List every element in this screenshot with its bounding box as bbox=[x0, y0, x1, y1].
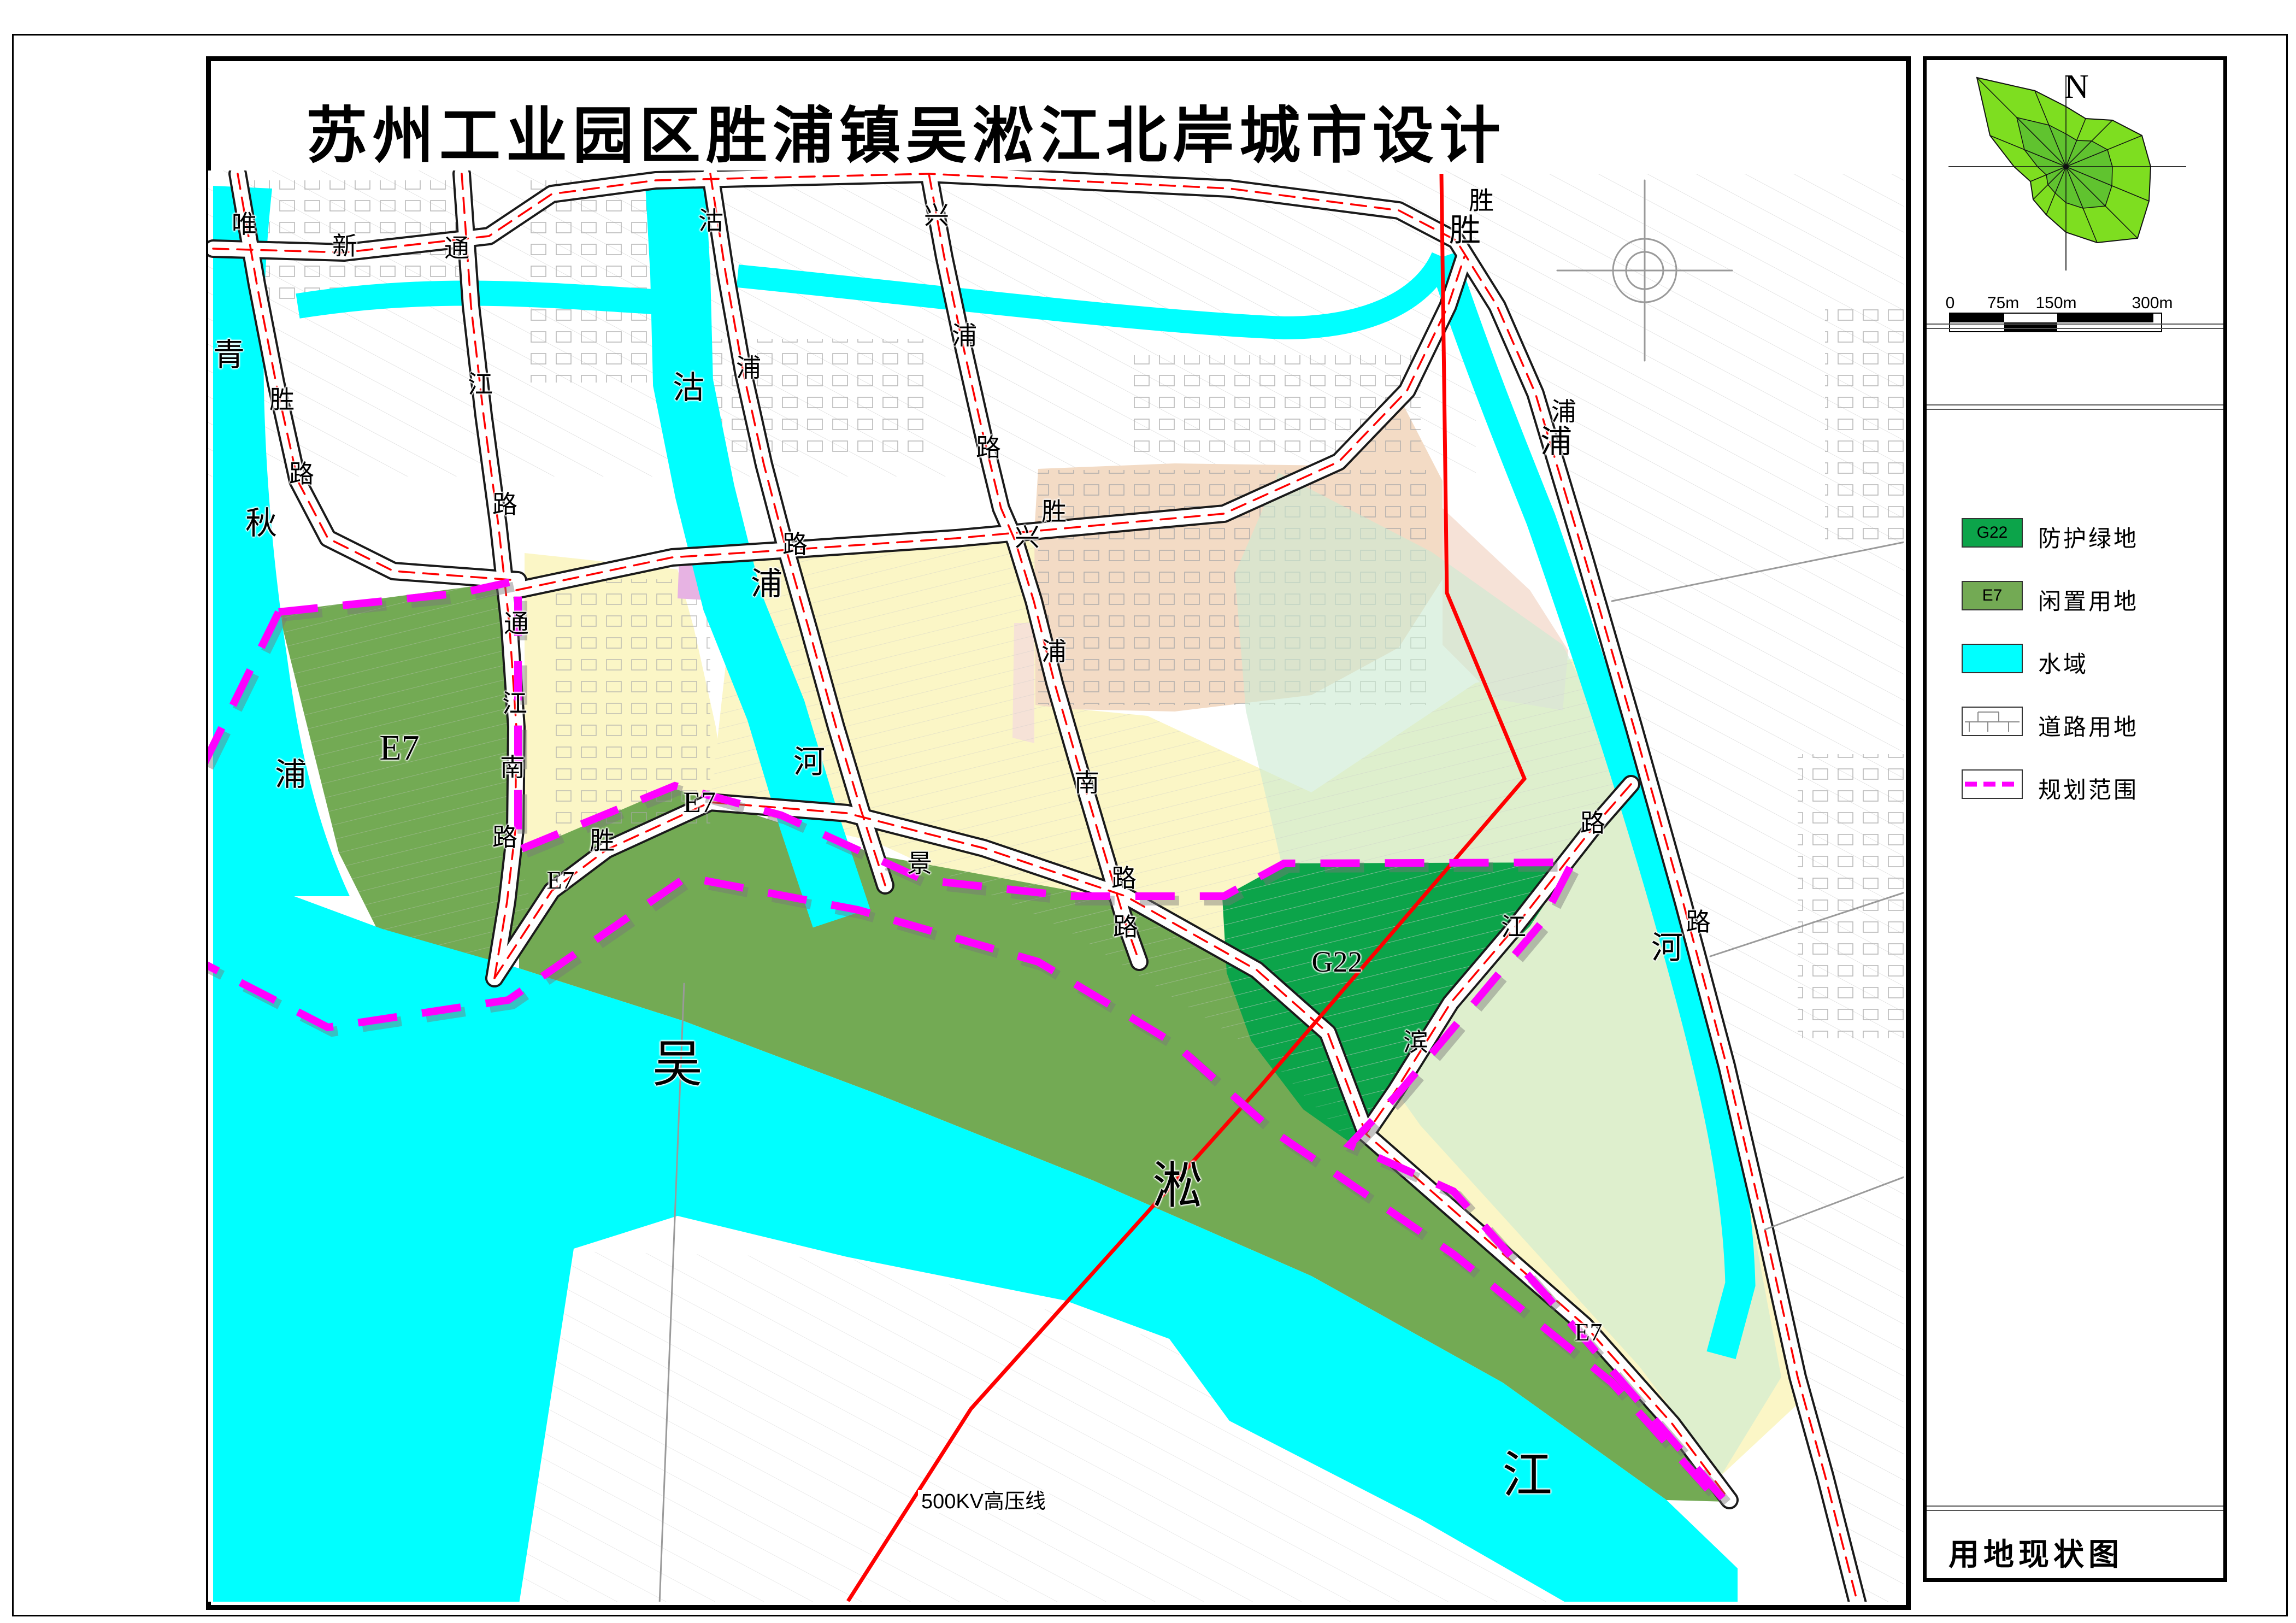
zone-label: E7 bbox=[683, 787, 716, 817]
legend-code: G22 bbox=[1977, 524, 2008, 542]
zone-label: E7 bbox=[379, 730, 419, 766]
road-char: 滨 bbox=[1403, 1030, 1428, 1055]
road-char: 胜 bbox=[590, 828, 615, 854]
road-pattern-icon bbox=[1964, 709, 2021, 734]
road-char: 胜 bbox=[269, 387, 295, 413]
road-char: 通 bbox=[444, 236, 469, 261]
river-char: 浦 bbox=[275, 759, 307, 791]
road-char: 通 bbox=[504, 611, 529, 637]
road-char: 南 bbox=[1074, 771, 1099, 796]
legend-swatch-roads bbox=[1962, 707, 2023, 736]
river-char: 河 bbox=[1651, 932, 1683, 964]
panel-divider bbox=[1927, 328, 2223, 329]
buildings-top4 bbox=[1126, 355, 1421, 459]
zone-label: G22 bbox=[1312, 947, 1363, 977]
panel-divider bbox=[1927, 1510, 2223, 1511]
river-char: 浦 bbox=[751, 568, 782, 600]
top-stream-west bbox=[298, 293, 678, 306]
road-char: 路 bbox=[782, 532, 808, 557]
road-char: 胜 bbox=[1469, 189, 1494, 214]
drawing-title: 用地现状图 bbox=[1948, 1530, 2123, 1574]
road-char: 路 bbox=[1111, 866, 1137, 891]
buildings-northeast bbox=[1825, 306, 1907, 546]
scale-tick: 75m bbox=[1987, 294, 2019, 313]
river-char: 胜 bbox=[1449, 215, 1481, 246]
water-char: 吴 bbox=[652, 1039, 703, 1090]
road-char: 浦 bbox=[736, 356, 761, 381]
power-line-label: 500KV高压线 bbox=[918, 1490, 1049, 1513]
road-char: 浦 bbox=[1041, 639, 1067, 665]
panel-divider bbox=[1927, 1506, 2223, 1507]
river-char: 河 bbox=[793, 746, 825, 778]
road-char: 兴 bbox=[1015, 525, 1040, 550]
zone-label: E7 bbox=[546, 868, 574, 893]
river-char: 浦 bbox=[1540, 426, 1572, 458]
scale-tick: 150m bbox=[2035, 294, 2076, 313]
side-panel: N 0 75m 150m 300m G22 bbox=[1923, 56, 2227, 1582]
legend-swatch-g22: G22 bbox=[1962, 518, 2023, 548]
legend-code: E7 bbox=[1982, 586, 2003, 605]
road-char: 路 bbox=[976, 436, 1001, 461]
legend-item-boundary: 规划范围 bbox=[1927, 769, 2223, 800]
legend-label: 水域 bbox=[2038, 646, 2088, 679]
road-char: 景 bbox=[907, 851, 932, 877]
river-char: 青 bbox=[213, 339, 245, 371]
legend-label: 规划范围 bbox=[2038, 772, 2139, 805]
panel-divider bbox=[1927, 404, 2223, 405]
panel-divider bbox=[1927, 409, 2223, 410]
road-char: 沽 bbox=[698, 209, 723, 234]
road-char: 路 bbox=[1686, 910, 1711, 935]
legend-label: 防护绿地 bbox=[2038, 520, 2139, 554]
road-char: 路 bbox=[1580, 811, 1605, 836]
legend-item-roads: 道路用地 bbox=[1927, 707, 2223, 737]
road-char: 浦 bbox=[952, 324, 977, 349]
zone-label: E7 bbox=[1574, 1320, 1602, 1345]
road-char: 江 bbox=[1501, 915, 1526, 940]
scale-bar-graphic bbox=[1949, 313, 2162, 332]
boundary-dash-icon bbox=[1964, 772, 2021, 797]
road-char: 路 bbox=[492, 492, 517, 518]
road-char: 兴 bbox=[924, 203, 949, 228]
legend-label: 闲置用地 bbox=[2038, 583, 2139, 616]
north-label: N bbox=[2064, 68, 2089, 107]
legend-item-g22: G22 防护绿地 bbox=[1927, 518, 2223, 549]
water-char: 江 bbox=[1502, 1450, 1552, 1501]
river-char: 沽 bbox=[673, 372, 704, 404]
road-char: 唯 bbox=[232, 212, 257, 237]
legend-swatch-e7: E7 bbox=[1962, 581, 2023, 610]
scale-tick: 300m bbox=[2132, 294, 2173, 313]
legend-item-water: 水域 bbox=[1927, 644, 2223, 674]
panel-divider bbox=[1927, 324, 2223, 325]
road-char: 胜 bbox=[1041, 499, 1067, 525]
legend-swatch-boundary bbox=[1962, 769, 2023, 799]
road-char: 南 bbox=[500, 755, 525, 780]
road-char: 浦 bbox=[1551, 399, 1576, 425]
road-char: 江 bbox=[502, 691, 527, 716]
legend-swatch-water bbox=[1962, 644, 2023, 673]
water-char: 淞 bbox=[1152, 1161, 1203, 1211]
road-char: 路 bbox=[1113, 915, 1138, 940]
scale-tick: 0 bbox=[1946, 294, 1955, 313]
legend-item-e7: E7 闲置用地 bbox=[1927, 581, 2223, 611]
road-char: 江 bbox=[468, 372, 493, 397]
scale-bar-labels: 0 75m 150m 300m bbox=[1949, 294, 2162, 313]
road-char: 路 bbox=[289, 462, 314, 487]
scale-bar: 0 75m 150m 300m bbox=[1949, 294, 2162, 332]
legend-label: 道路用地 bbox=[2038, 709, 2139, 742]
page: 苏州工业园区胜浦镇吴淞江北岸城市设计 bbox=[0, 0, 2296, 1623]
road-char: 新 bbox=[332, 234, 357, 259]
road-char: 路 bbox=[492, 825, 517, 850]
river-char: 秋 bbox=[245, 508, 277, 539]
